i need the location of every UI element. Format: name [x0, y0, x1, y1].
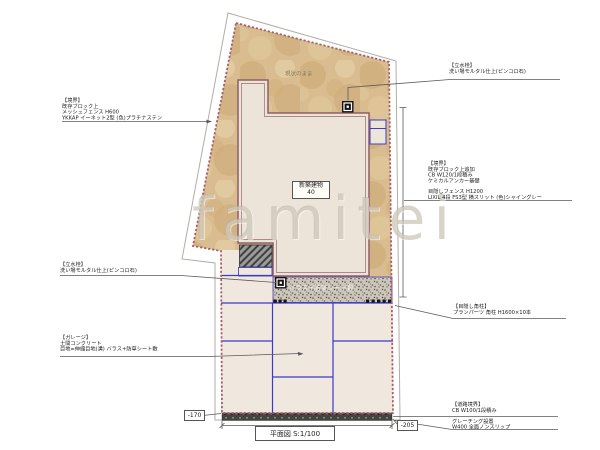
label-garage: 【ガレージ】 土間コンクリート 目地=伸縮目地(溝) バラス+防草シート敷: [60, 335, 158, 352]
water-tap-icon: [275, 277, 287, 289]
label-tap-top: 【立水栓】 洗い場モルタル仕上(ピンコロ石): [449, 63, 526, 74]
label-tap-left: 【立水栓】 洗い場モルタル仕上(ピンコロ石): [60, 262, 137, 273]
site-note: 現状のまま: [285, 69, 313, 77]
label-road: 【道路境界】 CB W100/1段積み グレーチング設置 W400 全面ノンスリ…: [452, 402, 510, 430]
grating-strip: [222, 413, 392, 421]
label-boundary-right: 【境界】 既存ブロック上追加 CB W120/1段積み ケミカルアンカー基礎 目…: [428, 161, 542, 201]
label-line: W400 全面ノンスリップ: [452, 424, 510, 430]
plan-title: 平面図 S:1/100: [255, 426, 335, 441]
building-number: 40: [307, 190, 315, 197]
building-label: 新築建物 40: [292, 181, 330, 199]
label-line: 洗い場モルタル仕上(ピンコロ石): [60, 268, 137, 274]
label-line: プランパーツ 角柱 H1600×10本: [453, 310, 531, 316]
level-badge-left: -170: [184, 410, 205, 421]
equipment-unit: [370, 120, 386, 144]
gravel-strip-label: バラス+防草シート敷: [289, 283, 354, 292]
garage-slab: [221, 302, 393, 413]
site-plan-page: famitei 【境界】 既存ブロック上 メッシュフェンス H600 YKKAP…: [0, 0, 600, 450]
label-line: LIXIL 4段 FS3型 横スリット (色)シャイングレー: [428, 195, 542, 201]
level-badge-right: -205: [397, 420, 418, 431]
label-line: 目地=伸縮目地(溝) バラス+防草シート敷: [60, 346, 158, 352]
hatched-step: [240, 245, 273, 267]
label-fence-left: 【境界】 既存ブロック上 メッシュフェンス H600 YKKAP イーネット2型…: [62, 98, 162, 121]
step-landing: [239, 268, 273, 277]
label-line: YKKAP イーネット2型 (色)プラチナステン: [62, 115, 162, 121]
water-tap-icon: [342, 101, 354, 113]
label-posts-right: 【目隠し角柱】 プランパーツ 角柱 H1600×10本: [453, 304, 531, 315]
label-line: 洗い場モルタル仕上(ピンコロ石): [449, 69, 526, 75]
